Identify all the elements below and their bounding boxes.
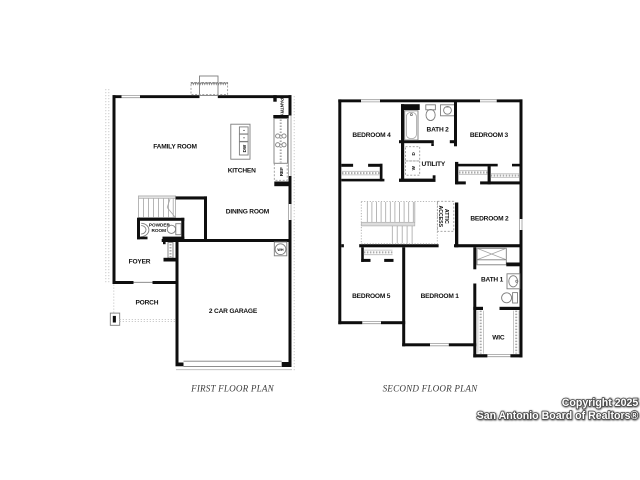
svg-text:BEDROOM 3: BEDROOM 3: [470, 132, 509, 139]
svg-text:UTILITY: UTILITY: [422, 161, 446, 168]
svg-text:PANTRY: PANTRY: [279, 98, 284, 116]
svg-text:BATH 1: BATH 1: [481, 276, 504, 283]
svg-text:BEDROOM 4: BEDROOM 4: [352, 132, 391, 139]
svg-text:POWDER: POWDER: [149, 222, 171, 227]
svg-text:SECOND FLOOR PLAN: SECOND FLOOR PLAN: [383, 383, 479, 393]
svg-text:BEDROOM 2: BEDROOM 2: [470, 215, 509, 222]
svg-text:Copyright 2025: Copyright 2025: [562, 397, 639, 409]
svg-text:San Antonio Board of Realtors®: San Antonio Board of Realtors®: [477, 410, 639, 422]
svg-text:ATTIC: ATTIC: [443, 209, 449, 224]
svg-text:BEDROOM 5: BEDROOM 5: [352, 293, 391, 300]
svg-text:BEDROOM 1: BEDROOM 1: [421, 293, 460, 300]
svg-text:W: W: [411, 165, 416, 170]
svg-text:WH: WH: [277, 248, 283, 252]
svg-text:DINING ROOM: DINING ROOM: [226, 208, 270, 215]
svg-text:ACCESS: ACCESS: [437, 205, 443, 227]
svg-text:DW: DW: [242, 144, 247, 152]
svg-text:REF: REF: [279, 167, 284, 176]
svg-text:FOYER: FOYER: [129, 258, 151, 265]
svg-text:PORCH: PORCH: [135, 300, 158, 307]
svg-text:WIC: WIC: [492, 334, 505, 341]
svg-text:KITCHEN: KITCHEN: [228, 167, 256, 174]
svg-text:FAMILY ROOM: FAMILY ROOM: [153, 143, 197, 150]
svg-text:ROOM: ROOM: [152, 228, 167, 233]
svg-text:FIRST FLOOR PLAN: FIRST FLOOR PLAN: [190, 383, 275, 393]
svg-text:BATH 2: BATH 2: [427, 127, 450, 134]
svg-text:2 CAR GARAGE: 2 CAR GARAGE: [209, 308, 258, 315]
